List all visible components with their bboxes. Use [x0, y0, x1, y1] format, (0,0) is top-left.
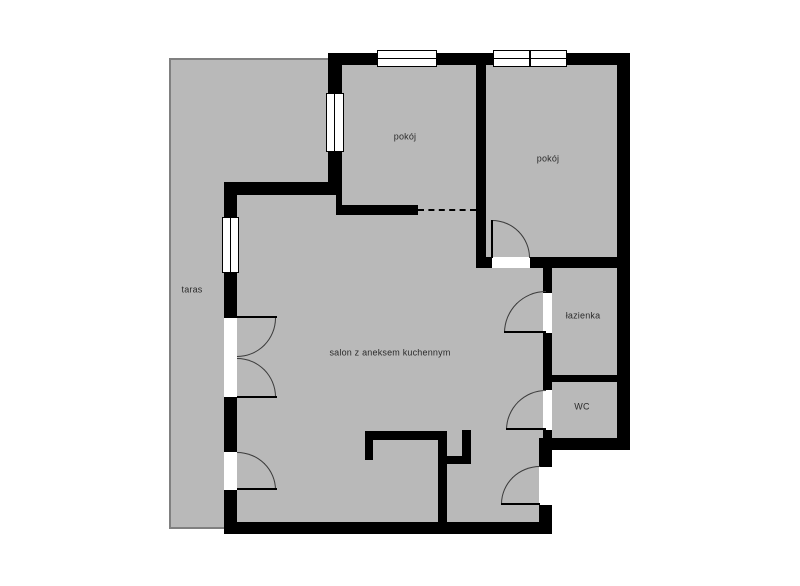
- room-label-salon: salon z aneksem kuchennym: [329, 349, 450, 358]
- window-divider: [529, 50, 531, 67]
- door-leaf-salon-terrace: [237, 488, 277, 490]
- terrace-outline-left: [169, 58, 171, 529]
- room-label-taras: taras: [181, 286, 202, 295]
- wall-kitchen-stub-right-v: [462, 430, 471, 464]
- wall-wc-bottom: [539, 438, 630, 450]
- door-leaf-entry: [501, 503, 540, 505]
- window-mullion: [334, 93, 335, 152]
- window-pokoj1-terrace: [326, 93, 344, 152]
- wall-kitchen-vertical: [438, 431, 447, 523]
- room-label-lazienka: łazienka: [566, 312, 601, 321]
- apartment-floor-upper: [232, 59, 624, 450]
- wall-right: [617, 53, 630, 450]
- room-label-pokoj-2: pokój: [537, 155, 560, 164]
- entry-door-opening: [539, 467, 552, 505]
- virtual-wall-dashed-line: [418, 209, 476, 211]
- room-label-wc: WC: [574, 403, 589, 412]
- wall-kitchen-stub-left: [365, 431, 373, 460]
- door-leaf-bath: [504, 331, 546, 333]
- wall-bath-bottom: [543, 375, 617, 382]
- door-leaf-pokoj2: [491, 220, 493, 258]
- wall-top: [330, 53, 630, 65]
- pokoj2-door-opening: [492, 257, 530, 268]
- wall-kitchen-top: [365, 431, 447, 440]
- wall-terrace-salon: [224, 182, 342, 195]
- french-door-leaf-top: [237, 316, 277, 318]
- wall-bottom: [227, 522, 552, 534]
- wall-rooms-divider: [476, 65, 486, 268]
- wall-pokoj1-bottom: [336, 205, 418, 215]
- terrace-outline-bottom: [169, 527, 229, 529]
- french-door-leaf-bottom: [237, 396, 277, 398]
- window-mullion: [377, 58, 437, 59]
- terrace-outline-top: [169, 58, 330, 60]
- french-door-opening: [224, 318, 237, 397]
- floor-plan: taras pokój pokój salon z aneksem kuchen…: [0, 0, 800, 586]
- window-salon-terrace: [222, 217, 239, 273]
- window-mullion: [230, 217, 231, 273]
- window-pokoj1-top: [377, 50, 437, 67]
- wall-stub-corner: [336, 195, 342, 205]
- salon-terrace-door-opening: [224, 452, 237, 490]
- window-pokoj2-top: [493, 50, 567, 67]
- door-leaf-wc: [506, 428, 546, 430]
- room-label-pokoj-1: pokój: [394, 133, 417, 142]
